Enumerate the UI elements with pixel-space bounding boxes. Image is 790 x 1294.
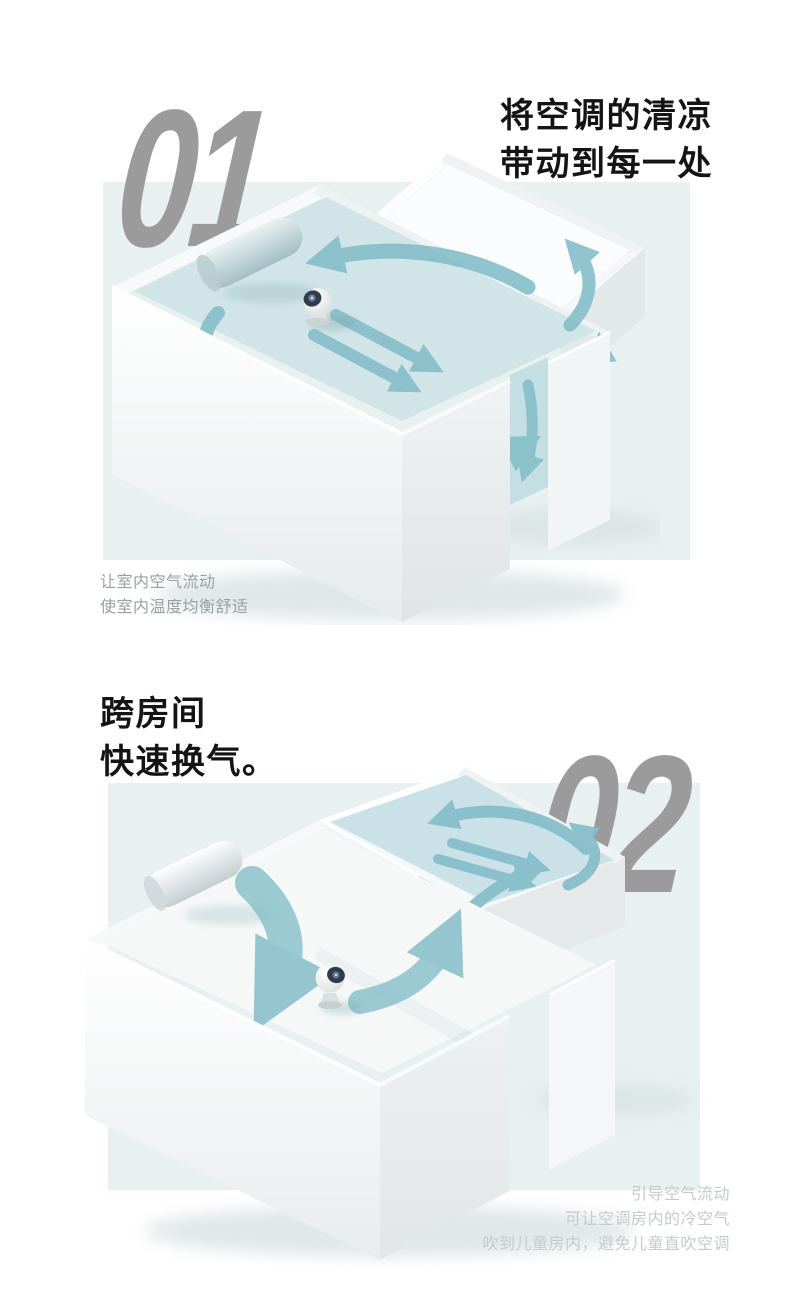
room1-door-pillar xyxy=(548,332,610,551)
section1-caption: 让室内空气流动 使室内温度均衡舒适 xyxy=(100,570,249,620)
section1-caption-line2: 使室内温度均衡舒适 xyxy=(100,595,249,620)
page-canvas: 01 将空调的清凉 带动到每一处 xyxy=(0,0,790,1294)
room2-door-pillar xyxy=(549,960,615,1170)
section1-caption-line1: 让室内空气流动 xyxy=(100,570,249,595)
section2-caption-line3: 吹到儿童房内，避免儿童直吹空调 xyxy=(482,1232,730,1257)
room1-illustration xyxy=(100,145,660,625)
section2-caption: 引导空气流动 可让空调房内的冷空气 吹到儿童房内，避免儿童直吹空调 xyxy=(482,1182,730,1257)
section2-caption-line1: 引导空气流动 xyxy=(482,1182,730,1207)
airflow-arrow xyxy=(526,385,532,469)
section2-heading-line1: 跨房间 xyxy=(100,690,278,738)
section1-heading-line1: 将空调的清凉 xyxy=(500,92,713,140)
section2-caption-line2: 可让空调房内的冷空气 xyxy=(482,1207,730,1232)
